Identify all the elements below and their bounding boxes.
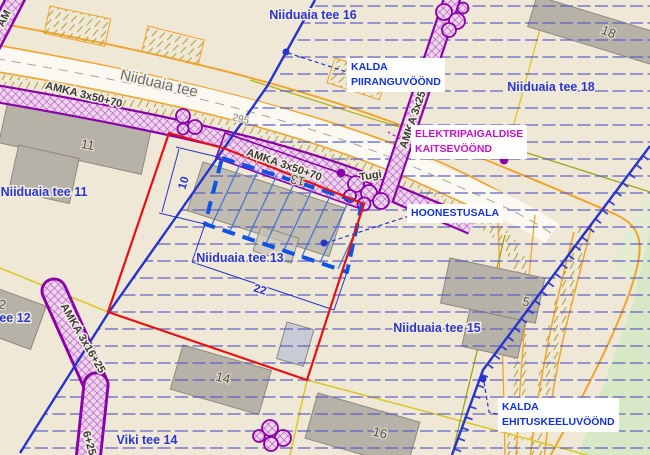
parcel-label-tee13: Niiduaia tee 13 <box>196 251 284 265</box>
annotation-ehituskeeluvoond: KALDA EHITUSKEELUVÖÖND <box>498 398 619 432</box>
annotation-ehituskeeluvoond-line1: KALDA <box>502 400 615 415</box>
annotation-ehituskeeluvoond-line2: EHITUSKEELUVÖÖND <box>502 415 615 430</box>
leader-dot-piiranguvoond <box>283 49 290 56</box>
parcel-label-tee12: ee 12 <box>0 311 31 325</box>
annotation-kaitsevoond: ELEKTRIPAIGALDISE KAITSEVÖÖND <box>411 125 527 159</box>
parcel-label-tee18: Niiduaia tee 18 <box>507 80 595 94</box>
leader-dot-ehituskeeluvoond <box>480 376 487 383</box>
annotation-piiranguvoond-line1: KALDA <box>351 60 441 75</box>
annotation-kaitsevoond-line2: KAITSEVÖÖND <box>415 142 523 157</box>
annotation-piiranguvoond: KALDA PIIRANGUVÖÖND <box>347 58 445 92</box>
parcel-label-tee15: Niiduaia tee 15 <box>393 321 481 335</box>
leader-dot-hoonestusala <box>321 240 328 247</box>
building-number-11: 11 <box>80 136 96 153</box>
annotation-kaitsevoond-line1: ELEKTRIPAIGALDISE <box>415 127 523 142</box>
parcel-label-viki14: Viki tee 14 <box>117 433 178 447</box>
map-canvas: Niiduaia tee 295 AMKA 3x50+70 AMKA 3x50+… <box>0 0 650 455</box>
annotation-hoonestusala-line1: HOONESTUSALA <box>411 206 499 221</box>
parcel-label-tee16: Niiduaia tee 16 <box>269 8 357 22</box>
parcel-label-tee11: Niiduaia tee 11 <box>1 185 88 199</box>
annotation-piiranguvoond-line2: PIIRANGUVÖÖND <box>351 75 441 90</box>
annotation-hoonestusala: HOONESTUSALA <box>407 204 503 223</box>
detail-plan-map[interactable]: Niiduaia tee 295 AMKA 3x50+70 AMKA 3x50+… <box>0 0 650 455</box>
